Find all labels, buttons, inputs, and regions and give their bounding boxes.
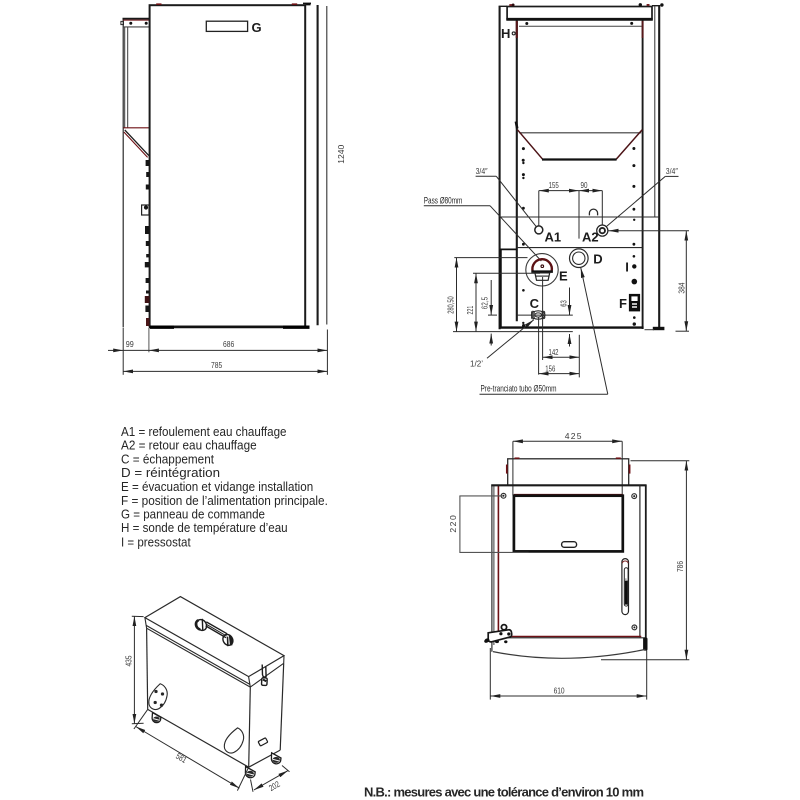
- svg-text:435: 435: [123, 655, 133, 666]
- svg-text:G = panneau de commande: G = panneau de commande: [121, 507, 265, 521]
- svg-text:E: E: [559, 269, 568, 284]
- svg-text:155: 155: [549, 180, 559, 190]
- svg-text:280,50: 280,50: [446, 296, 456, 314]
- svg-text:3/4″: 3/4″: [476, 166, 488, 176]
- svg-text:156: 156: [545, 363, 555, 373]
- svg-text:3/4″: 3/4″: [666, 166, 678, 176]
- svg-text:686: 686: [223, 339, 234, 349]
- svg-text:62,5: 62,5: [479, 297, 489, 310]
- svg-text:Pass Ø80mm: Pass Ø80mm: [424, 195, 463, 206]
- svg-text:I = pressostat: I = pressostat: [121, 535, 191, 549]
- svg-text:E = évacuation et vidange inst: E = évacuation et vidange installation: [121, 480, 313, 494]
- svg-text:220: 220: [448, 514, 458, 533]
- svg-text:H: H: [501, 26, 510, 41]
- svg-text:610: 610: [554, 685, 565, 695]
- svg-text:99: 99: [126, 339, 134, 349]
- svg-text:D: D: [593, 251, 602, 266]
- svg-text:A1: A1: [545, 229, 562, 244]
- svg-text:786: 786: [675, 561, 685, 572]
- svg-text:1240: 1240: [336, 144, 346, 163]
- svg-text:1/2’: 1/2’: [470, 359, 483, 369]
- svg-text:785: 785: [211, 360, 222, 370]
- svg-text:A2 = retour eau chauffage: A2 = retour eau chauffage: [121, 438, 257, 452]
- svg-text:F = position de l’alimentation: F = position de l’alimentation principal…: [121, 494, 328, 508]
- svg-text:F: F: [619, 296, 627, 311]
- svg-text:H = sonde de température d’eau: H = sonde de température d’eau: [121, 521, 288, 535]
- svg-text:N.B.: mesures avec une toléran: N.B.: mesures avec une tolérance d’envir…: [364, 784, 644, 799]
- svg-text:384: 384: [676, 282, 686, 293]
- svg-text:90: 90: [581, 180, 588, 190]
- svg-text:142: 142: [549, 347, 559, 357]
- svg-text:G: G: [252, 20, 262, 35]
- svg-text:63: 63: [559, 300, 569, 307]
- svg-text:425: 425: [565, 431, 583, 441]
- svg-text:221: 221: [465, 306, 475, 315]
- svg-text:D = réintégration: D = réintégration: [121, 466, 220, 480]
- svg-text:C = échappement: C = échappement: [121, 452, 214, 466]
- svg-text:C: C: [530, 296, 540, 311]
- svg-text:A2: A2: [582, 229, 599, 244]
- svg-text:A1 = refoulement eau chauffage: A1 = refoulement eau chauffage: [121, 425, 287, 439]
- svg-text:Pre-tranciato tubo Ø50mm: Pre-tranciato tubo Ø50mm: [481, 383, 557, 394]
- svg-text:I: I: [625, 260, 629, 275]
